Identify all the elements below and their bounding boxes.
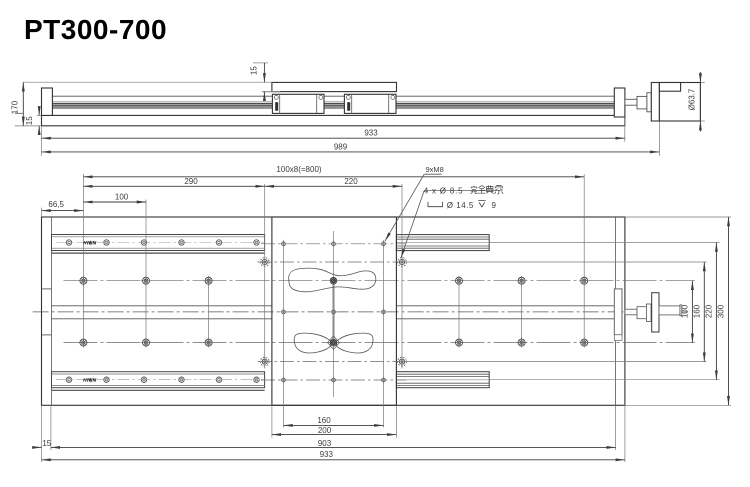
svg-text:100x8(=800): 100x8(=800) [276, 165, 321, 174]
svg-text:290: 290 [184, 177, 198, 186]
svg-text:15: 15 [25, 116, 34, 125]
svg-text:933: 933 [364, 129, 378, 138]
svg-text:66,5: 66,5 [48, 200, 64, 209]
svg-text:933: 933 [320, 450, 334, 459]
svg-text:15: 15 [42, 439, 51, 448]
svg-text:989: 989 [334, 142, 348, 151]
svg-text:220: 220 [704, 304, 713, 318]
svg-text:160: 160 [317, 416, 331, 425]
svg-text:170: 170 [11, 100, 20, 114]
svg-text:9: 9 [492, 201, 497, 210]
svg-text:Ø 14.5: Ø 14.5 [447, 201, 474, 210]
svg-text:9xM8: 9xM8 [426, 165, 444, 174]
svg-text:15: 15 [249, 66, 258, 75]
svg-text:100: 100 [115, 193, 129, 202]
svg-text:Ø63.7: Ø63.7 [688, 88, 697, 110]
svg-text:903: 903 [318, 439, 332, 448]
svg-text:200: 200 [318, 426, 332, 435]
svg-text:220: 220 [344, 177, 358, 186]
svg-text:100: 100 [680, 304, 689, 318]
svg-text:PT300-700: PT300-700 [24, 14, 167, 45]
svg-text:300: 300 [717, 304, 726, 318]
svg-text:160: 160 [692, 304, 701, 318]
svg-text:4 x Ø 8.5: 4 x Ø 8.5 [424, 187, 464, 196]
